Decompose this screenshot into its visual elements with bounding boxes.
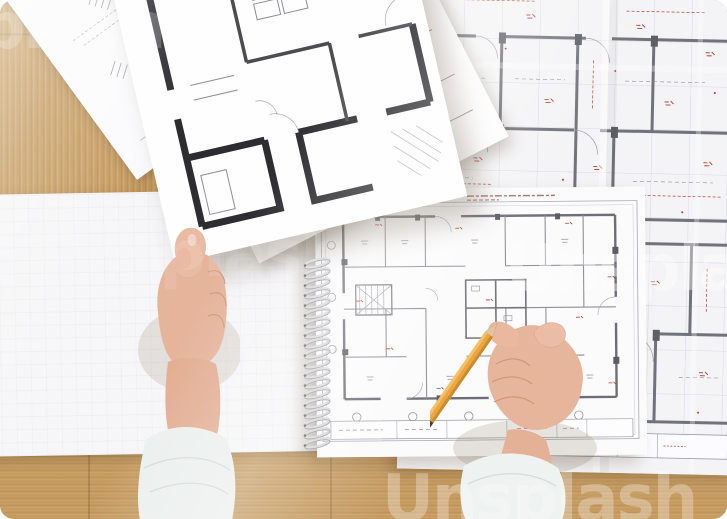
spiral-binding [300, 257, 334, 455]
photo-stage: Unsplash Unsplash Unsplash Unsplash [0, 0, 727, 519]
right-hand [430, 298, 605, 519]
wood-plank-seam [330, 450, 332, 519]
left-hand [128, 222, 240, 519]
